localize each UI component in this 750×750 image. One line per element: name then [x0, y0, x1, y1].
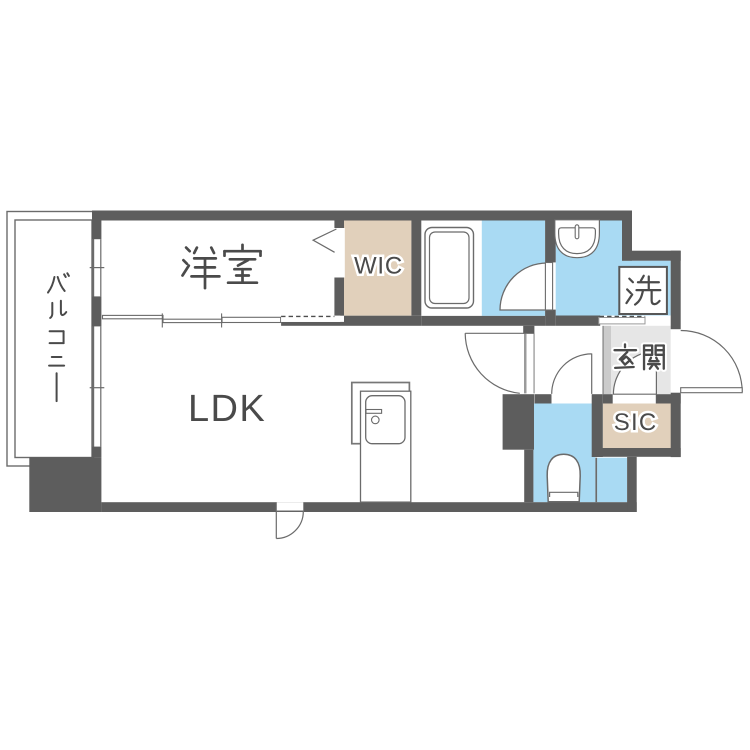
- svg-text:WIC: WIC: [354, 253, 403, 280]
- svg-text:LDK: LDK: [188, 388, 266, 430]
- svg-text:SIC: SIC: [614, 409, 658, 436]
